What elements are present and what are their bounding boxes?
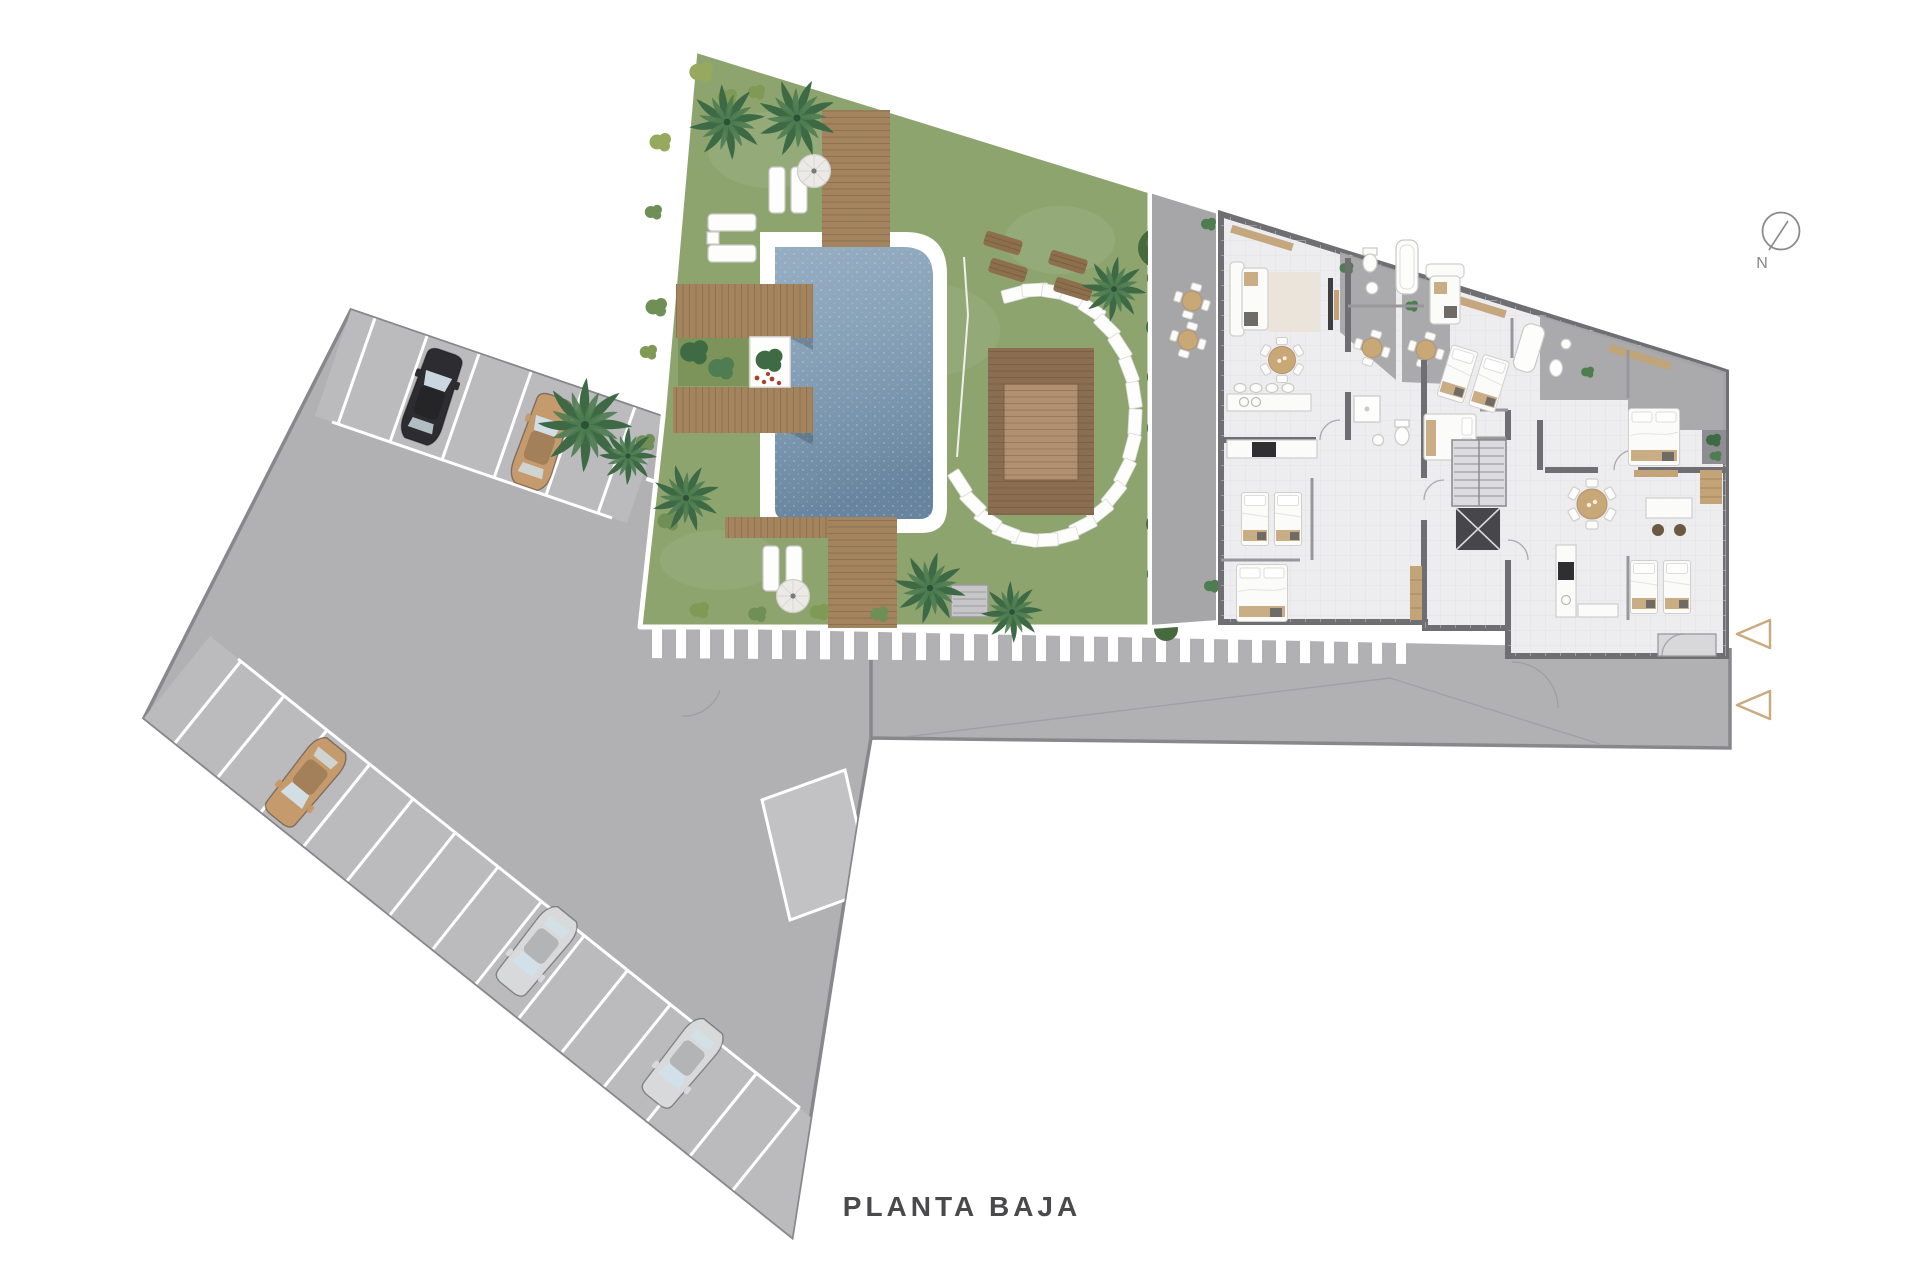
entrance-arrow-icon [1737, 691, 1770, 719]
stairs-icon [1452, 440, 1506, 506]
wardrobe [1410, 566, 1422, 620]
garden-stairs [951, 585, 988, 617]
toilet [1395, 427, 1409, 445]
bathtub [1396, 240, 1418, 294]
dresser [1634, 470, 1678, 477]
crosswalk-stripes [646, 628, 1415, 664]
tv-unit [1328, 278, 1333, 330]
rug [1268, 272, 1320, 332]
plan-title: PLANTA BAJA [843, 1191, 1081, 1222]
entrance-porch [1658, 634, 1716, 656]
pergola-deck [988, 348, 1094, 515]
terrace-strip [1150, 191, 1219, 627]
site-plan: N PLANTA BAJA [0, 0, 1920, 1280]
round-daybed-icon [798, 155, 831, 188]
toilet [1363, 254, 1377, 272]
bed-icon [1629, 409, 1680, 466]
desk [1646, 498, 1692, 518]
sink [1561, 339, 1571, 349]
swimming-pool [760, 232, 968, 533]
entrance-arrows [1737, 620, 1770, 719]
kitchen-counter [1556, 545, 1576, 617]
round-daybed-icon [777, 580, 810, 613]
wardrobe [1700, 470, 1722, 504]
range [1252, 442, 1276, 457]
sink [1366, 282, 1378, 294]
bed-icon [1237, 565, 1288, 622]
sink [1373, 435, 1384, 446]
toilet [1550, 360, 1563, 377]
sofa-b [1426, 264, 1464, 324]
entrance-arrow-icon [1737, 620, 1770, 648]
planters [678, 337, 790, 387]
north-compass-icon: N [1756, 213, 1799, 273]
elevator-icon [1456, 508, 1500, 550]
compass-label: N [1756, 255, 1768, 272]
range [1558, 562, 1574, 580]
building [1221, 214, 1726, 656]
